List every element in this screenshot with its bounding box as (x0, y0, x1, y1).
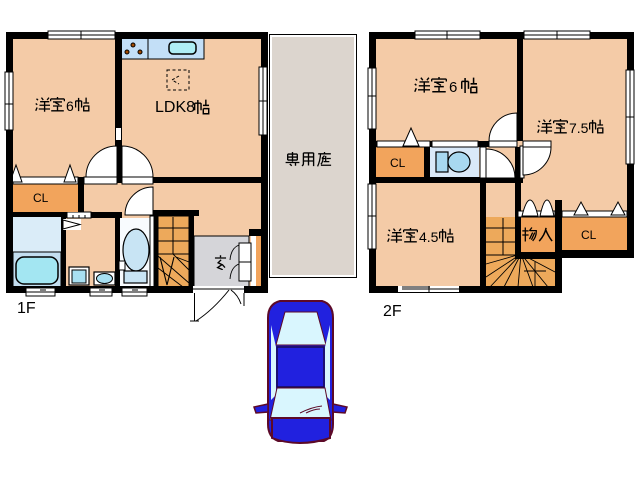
svg-text:CL: CL (581, 228, 597, 242)
svg-text:6: 6 (449, 79, 457, 96)
svg-text:2F: 2F (383, 303, 402, 320)
svg-text:1F: 1F (17, 300, 36, 317)
svg-text:4.5: 4.5 (419, 229, 439, 245)
svg-text:LDK8: LDK8 (155, 99, 195, 116)
svg-text:7.5: 7.5 (569, 120, 589, 136)
svg-text:CL: CL (33, 191, 49, 205)
svg-text:CL: CL (390, 156, 406, 170)
svg-text:6: 6 (66, 98, 74, 114)
